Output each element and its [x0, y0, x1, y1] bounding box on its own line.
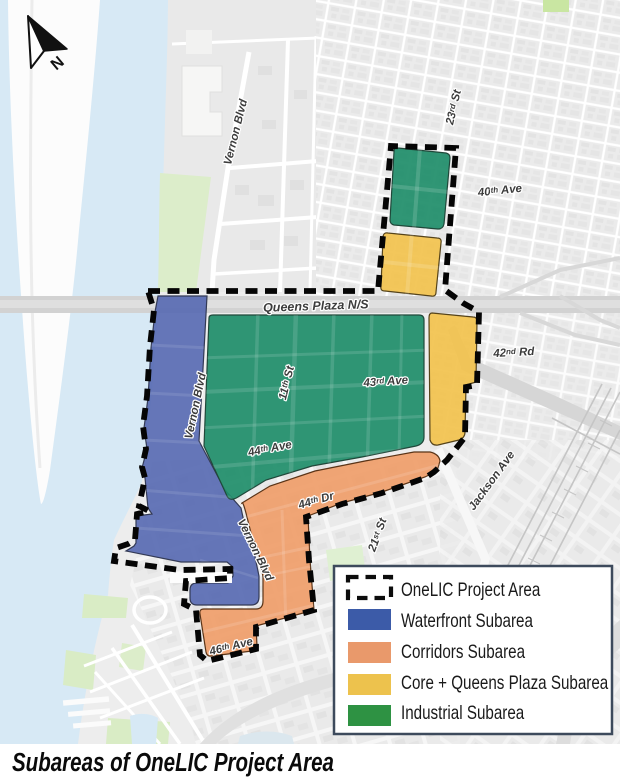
svg-text:Waterfront Subarea: Waterfront Subarea: [401, 609, 533, 631]
svg-text:Corridors Subarea: Corridors Subarea: [401, 640, 525, 662]
svg-text:Core + Queens Plaza Subarea: Core + Queens Plaza Subarea: [401, 671, 609, 693]
svg-text:Subareas of OneLIC Project Are: Subareas of OneLIC Project Area: [12, 748, 334, 777]
svg-text:Industrial Subarea: Industrial Subarea: [401, 701, 525, 723]
svg-text:OneLIC Project Area: OneLIC Project Area: [401, 578, 541, 600]
